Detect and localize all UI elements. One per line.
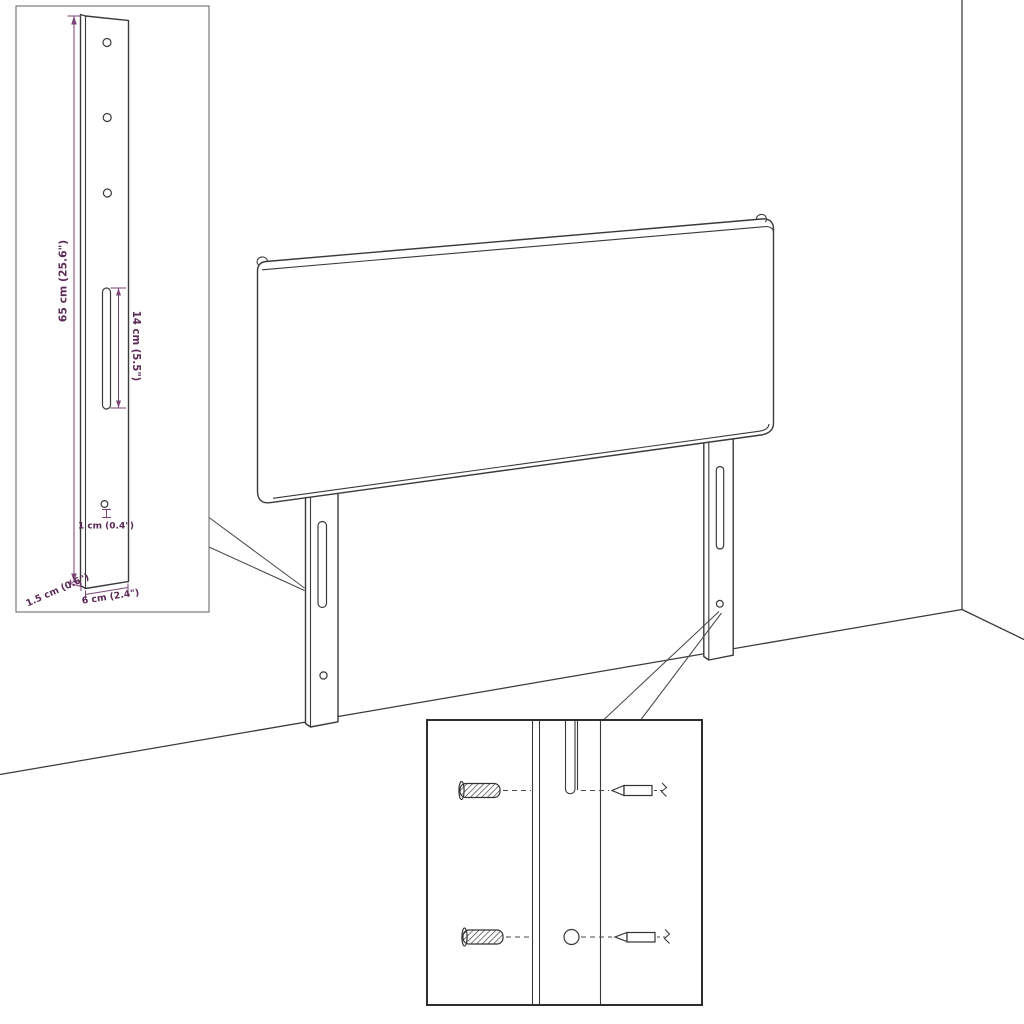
mount-detail-inset [427,720,702,1005]
leg-detail-inset: 65 cm (25.6") 14 cm (5.5") 1 cm (0.4") 1… [16,6,209,612]
left-leg-slot [318,522,327,608]
bracket-hole-middle [103,114,111,122]
diagram-canvas: 65 cm (25.6") 14 cm (5.5") 1 cm (0.4") 1… [0,0,1024,1024]
bracket-hole-top [103,39,111,47]
callout-left-leg [209,518,305,591]
bracket-hole-lower [103,189,111,197]
dimension-thickness: 1.5 cm (0.6") [24,572,91,610]
left-leg [306,467,339,727]
headboard-panel [257,214,773,502]
bracket-small-hole [101,501,108,508]
mount-detail-frame [427,720,702,1005]
headboard-diagram: 65 cm (25.6") 14 cm (5.5") 1 cm (0.4") 1… [0,0,1024,1024]
right-leg-hole [716,600,723,607]
mount-detail-hole [564,930,579,945]
right-leg [704,437,733,660]
dimension-height: 65 cm (25.6") [57,16,82,582]
leg-bracket [81,15,129,589]
floor-line-right [962,610,1024,640]
dimension-height-label: 65 cm (25.6") [57,240,70,322]
dimension-slot-label: 14 cm (5.5") [130,311,141,382]
bracket-slot [103,288,111,409]
right-leg-slot [716,467,723,550]
left-leg-hole [320,672,327,679]
dimension-hole-label: 1 cm (0.4") [78,522,134,532]
